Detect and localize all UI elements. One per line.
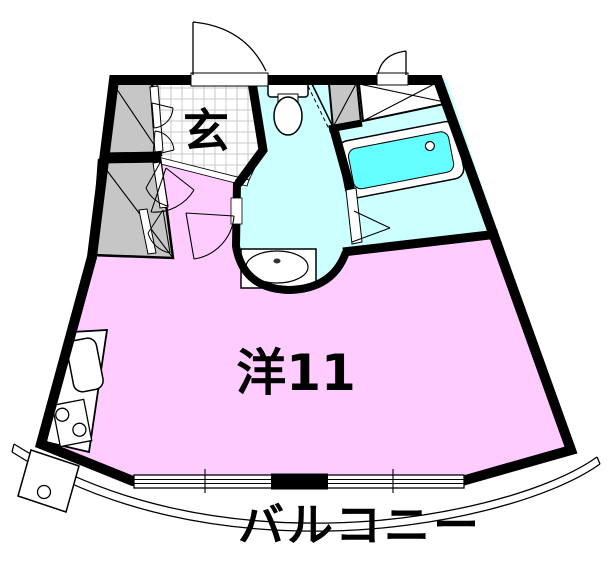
main-room-label: 洋11 — [236, 344, 356, 402]
entrance-door-sill — [191, 73, 268, 86]
balcony-label: バルコニー — [238, 498, 482, 552]
toilet-bowl — [274, 97, 302, 135]
closet-divider-wall — [102, 157, 161, 158]
service-door — [378, 51, 406, 75]
entrance-door — [193, 22, 266, 75]
entrance-label: 玄 — [183, 104, 229, 158]
window-pier — [271, 474, 328, 490]
service-door-sill — [377, 73, 408, 85]
floor-plan-drawing: 玄 洋11 バルコニー — [0, 0, 610, 580]
washroom-door-opening — [231, 198, 242, 224]
faucet — [274, 259, 281, 264]
floor-plan: 玄 洋11 バルコニー — [0, 0, 610, 580]
